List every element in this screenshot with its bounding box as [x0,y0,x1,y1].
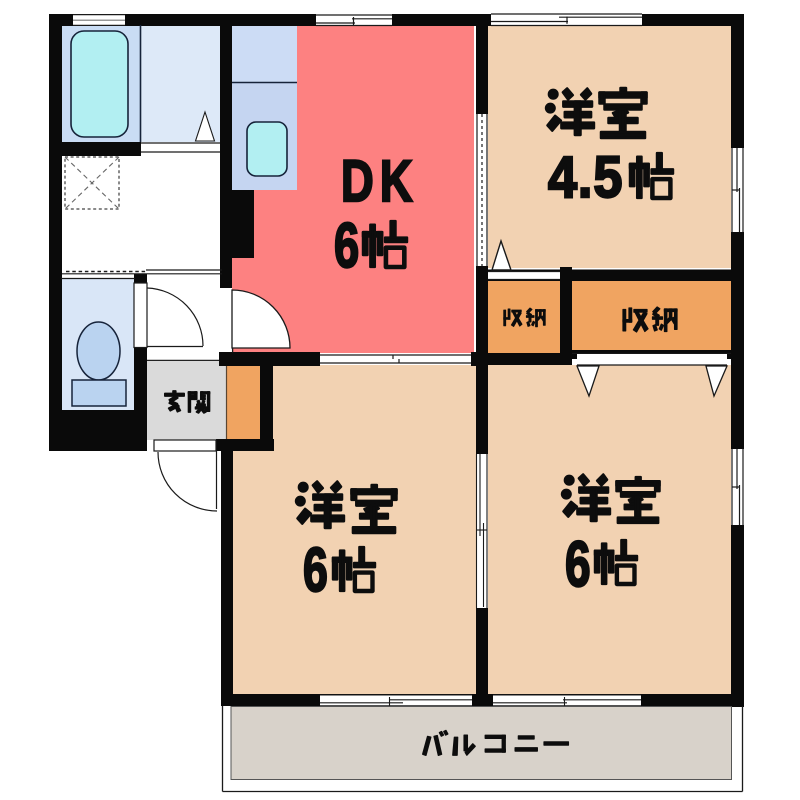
svg-text:4.5: 4.5 [548,144,623,209]
svg-text:DK: DK [341,150,419,215]
svg-text:6: 6 [334,210,359,281]
svg-text:6: 6 [565,529,591,600]
svg-text:6: 6 [303,536,328,605]
